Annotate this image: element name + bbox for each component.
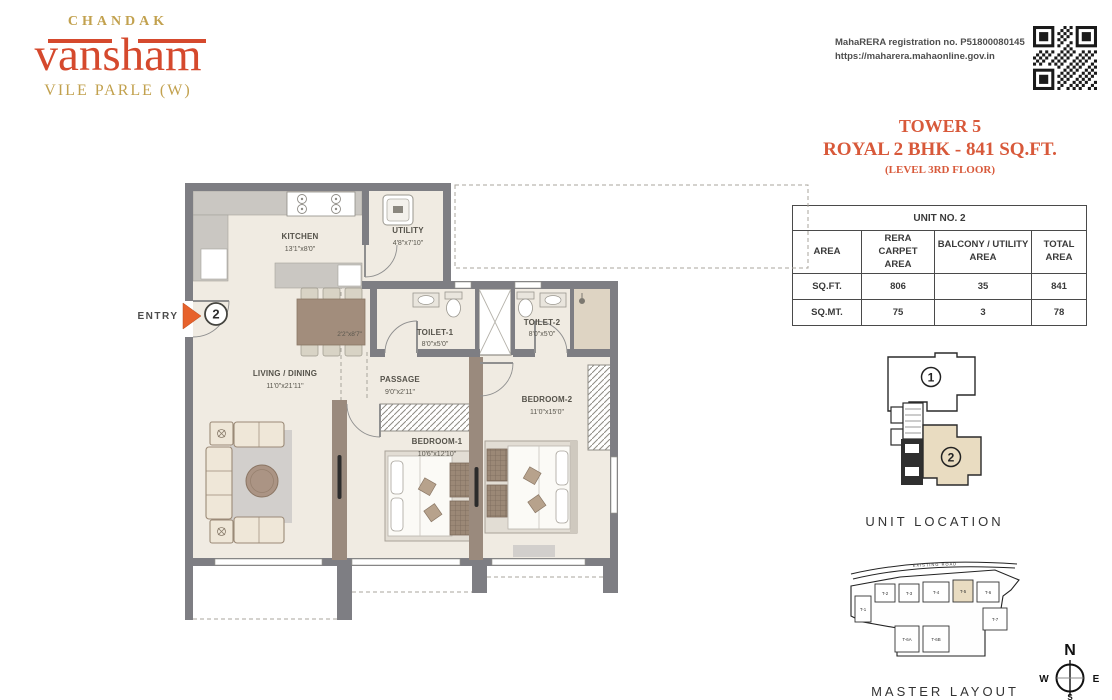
toilet1-label: TOILET-1: [417, 328, 454, 337]
compass-east: E: [1093, 674, 1100, 685]
row-sqft-balcony: 35: [935, 274, 1032, 300]
living-furniture: [206, 422, 292, 543]
open-area-outline: [455, 185, 808, 268]
brand-logo: CHANDAK vansham VILE PARLE (W): [12, 14, 224, 100]
dining-set: 2'2"x8'7": [297, 288, 365, 356]
svg-text:T-6: T-6: [985, 590, 992, 595]
bedroom2-side-window: [611, 457, 617, 513]
col-balcony: BALCONY / UTILITY AREA: [935, 231, 1032, 274]
kitchen-platform: [338, 265, 361, 286]
logo-overbar-right: [138, 39, 206, 43]
unit2-number: 2: [948, 451, 955, 465]
master-layout-map: EXISTING ROAD T-1 T-2 T-3 T-4 T-5 T-6 T-…: [845, 552, 1025, 680]
washing-machine-icon: [383, 195, 413, 225]
rera-registration: MahaRERA registration no. P51800080145 h…: [835, 36, 1035, 65]
passage-label: PASSAGE: [380, 375, 420, 384]
unit-title: TOWER 5 ROYAL 2 BHK - 841 SQ.FT. (LEVEL …: [790, 116, 1090, 176]
entry-marker: ENTRY 2: [137, 303, 227, 329]
toilet1-vent: [455, 282, 471, 288]
dining-table-dims: 2'2"x8'7": [337, 331, 362, 338]
kitchen-label: KITCHEN: [282, 232, 319, 241]
svg-text:T-3: T-3: [906, 591, 913, 596]
sofa-3-seater: [206, 447, 232, 519]
svg-text:T-4: T-4: [933, 590, 940, 595]
utility-label: UTILITY: [392, 226, 424, 235]
rera-number: MahaRERA registration no. P51800080145: [835, 36, 1035, 50]
utility-dims: 4'8"x7'10": [393, 240, 424, 247]
compass-west: W: [1039, 674, 1049, 685]
toilet1-dims: 8'0"x5'0": [422, 341, 449, 348]
svg-text:T-6A: T-6A: [902, 637, 911, 642]
entry-label: ENTRY: [137, 311, 178, 322]
qr-code: [1032, 26, 1098, 90]
svg-text:T-1: T-1: [860, 607, 867, 612]
unit-location-diagram: 1 2: [865, 345, 1005, 510]
toilet2-vent: [515, 282, 541, 288]
row-sqmt-carpet: 75: [862, 300, 935, 326]
area-table-title: UNIT NO. 2: [793, 206, 1087, 231]
living-dims: 11'0"x21'11": [266, 383, 304, 390]
kitchen-dims: 13'1"x8'0": [285, 246, 316, 253]
area-table: UNIT NO. 2 AREA RERA CARPET AREA BALCONY…: [792, 205, 1087, 326]
col-carpet: RERA CARPET AREA: [862, 231, 935, 274]
project-name: vansham: [12, 31, 224, 80]
bedroom1-window: [352, 559, 460, 565]
floor-plan: 2'2"x8'7": [130, 175, 830, 650]
svg-text:T-7: T-7: [992, 617, 999, 622]
toilet2-label: TOILET-2: [524, 318, 561, 327]
bedroom1-dims: 10'6"x12'10": [418, 451, 457, 458]
svg-text:T-6B: T-6B: [931, 637, 940, 642]
row-sqft-carpet: 806: [862, 274, 935, 300]
bedroom2-label: BEDROOM-2: [522, 395, 573, 404]
compass-north: N: [1064, 642, 1076, 659]
compass-icon: N W E S: [1026, 638, 1112, 700]
unit-type-title: ROYAL 2 BHK - 841 SQ.FT.: [790, 139, 1090, 161]
wc-icon: [445, 292, 462, 317]
compass-south: S: [1067, 693, 1073, 700]
row-sqmt-total: 78: [1032, 300, 1087, 326]
logo-overbar-left: [48, 39, 112, 43]
col-total: TOTAL AREA: [1032, 231, 1087, 274]
unit1-number: 1: [928, 371, 935, 385]
bedroom1-label: BEDROOM-1: [412, 437, 463, 446]
svg-text:T-5: T-5: [960, 589, 967, 594]
table-row: SQ.MT. 75 3 78: [793, 300, 1087, 326]
row-sqmt-balcony: 3: [935, 300, 1032, 326]
passage-dims: 9'0"x2'11": [385, 389, 416, 396]
project-location: VILE PARLE (W): [12, 82, 224, 100]
dining-table: [297, 299, 365, 345]
rera-url: https://maharera.mahaonline.gov.in: [835, 50, 1035, 64]
master-layout-caption: MASTER LAYOUT: [855, 684, 1035, 699]
tower-title: TOWER 5: [790, 116, 1090, 137]
bedside-rug: [513, 545, 555, 557]
kitchen-sink: [201, 249, 227, 279]
toilet2-dims: 8'0"x5'0": [529, 331, 556, 338]
shower-niche: [573, 289, 610, 351]
wc-icon: [517, 292, 534, 317]
bedroom2-dims: 11'0"x15'0": [530, 409, 564, 416]
living-label: LIVING / DINING: [253, 369, 317, 378]
duct-shaft: [479, 289, 511, 355]
stove-icon: [287, 192, 355, 216]
bedroom1-furniture: [380, 404, 473, 541]
bedroom2-window: [492, 559, 585, 565]
row-sqft-total: 841: [1032, 274, 1087, 300]
brand-name: CHANDAK: [12, 14, 224, 30]
svg-text:T-2: T-2: [882, 591, 889, 596]
table-row: SQ.FT. 806 35 841: [793, 274, 1087, 300]
unit-location-caption: UNIT LOCATION: [852, 514, 1017, 529]
level-title: (LEVEL 3RD FLOOR): [790, 164, 1090, 176]
entry-unit-number: 2: [212, 307, 219, 322]
living-window: [215, 559, 322, 565]
floorplan-brochure-page: { "brand": { "name": "CHANDAK", "project…: [0, 0, 1112, 700]
